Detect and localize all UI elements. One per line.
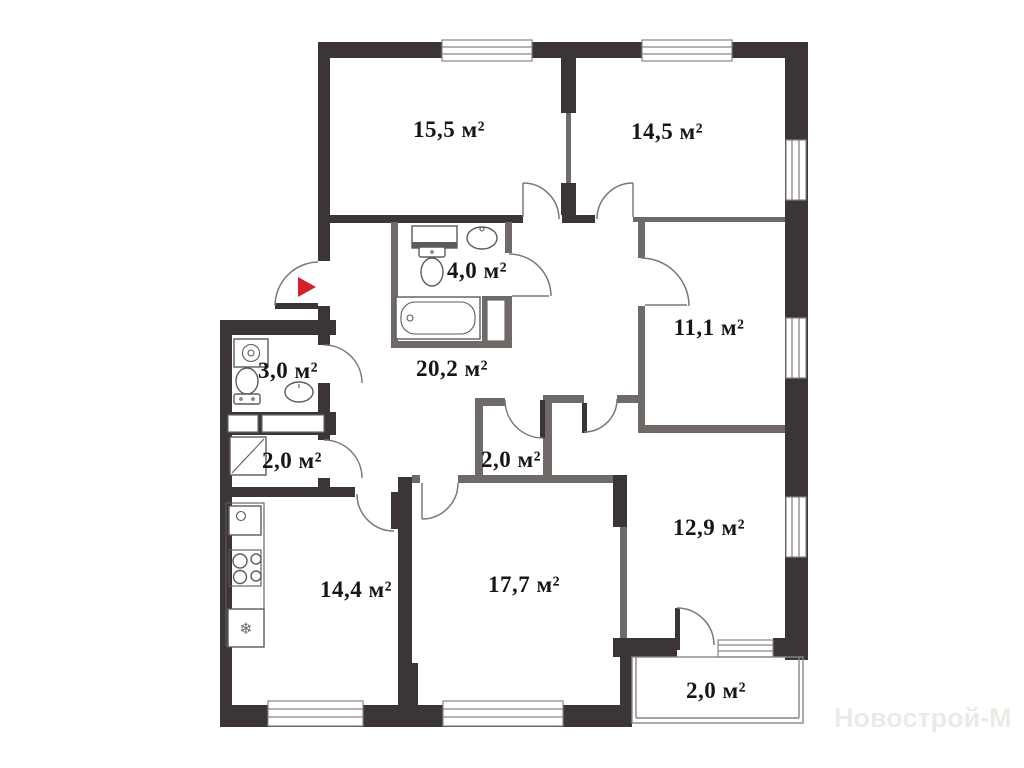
room-label-17-7: 17,7 м² (488, 572, 560, 598)
door-wardrobe (505, 400, 545, 438)
room-label-bathroom: 4,0 м² (447, 258, 507, 284)
floor-plan-drawing: ❄ (0, 0, 1024, 768)
window-room-14-5-right (786, 140, 806, 200)
door-storage (324, 440, 362, 478)
window-room-11-1 (786, 318, 806, 378)
sink-icon (285, 382, 313, 402)
stove-icon (229, 550, 261, 586)
toilet-icon (419, 247, 445, 286)
window-kitchen (268, 701, 363, 726)
room-label-hallway: 20,2 м² (416, 356, 488, 382)
door-room-12-9 (582, 399, 617, 433)
watermark: Новострой-М (834, 703, 1012, 734)
door-kitchen (357, 492, 398, 531)
room-label-12-9: 12,9 м² (673, 515, 745, 541)
door-balcony (675, 608, 714, 650)
door-room-17-7 (422, 483, 458, 519)
sink-icon (467, 227, 497, 249)
door-bathroom (509, 254, 551, 296)
room-label-storage: 2,0 м² (262, 448, 322, 474)
window-room-15-5 (442, 40, 532, 61)
door-room-14-5 (597, 183, 633, 219)
room-label-wardrobe: 2,0 м² (481, 447, 541, 473)
room-label-wc: 3,0 м² (258, 358, 318, 384)
washing-machine-icon (412, 226, 457, 248)
room-label-14-5: 14,5 м² (631, 119, 703, 145)
fridge-icon: ❄ (228, 609, 264, 647)
window-room-14-5-top (642, 40, 732, 61)
svg-text:❄: ❄ (239, 619, 252, 638)
room-label-balcony: 2,0 м² (686, 678, 746, 704)
door-room-15-5 (523, 183, 559, 219)
kitchen-sink-icon (229, 506, 261, 535)
window-room-12-9 (786, 497, 806, 557)
window-room-17-7 (443, 701, 563, 726)
room-label-kitchen: 14,4 м² (320, 577, 392, 603)
window-balcony-wall (718, 640, 773, 657)
door-room-11-1 (641, 258, 689, 306)
toilet-icon (234, 368, 260, 404)
shower-tray-icon (230, 437, 266, 475)
room-label-11-1: 11,1 м² (674, 315, 745, 341)
room-label-15-5: 15,5 м² (413, 117, 485, 143)
floor-plan: ❄ 15,5 м² 14,5 м² 4,0 м² 11,1 м² 3,0 м² … (0, 0, 1024, 768)
windows (268, 40, 806, 726)
bathtub-icon (396, 297, 480, 339)
entrance-arrow-icon (298, 277, 316, 297)
door-wc (324, 345, 362, 383)
